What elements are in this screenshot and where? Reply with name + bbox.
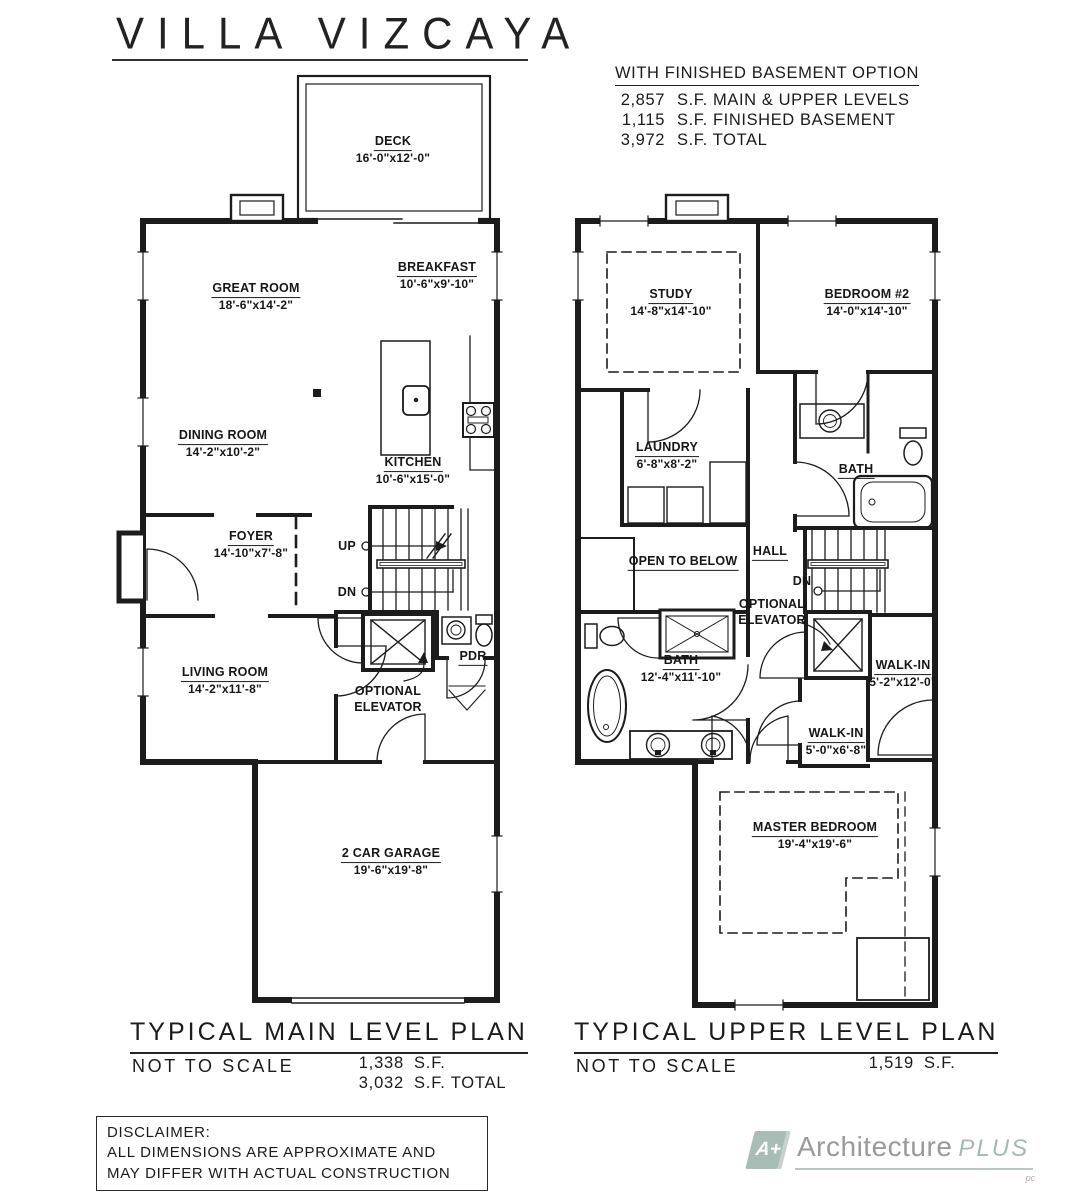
room-label-walkin-large: WALK-IN5'-2"x12'-0"	[869, 657, 937, 691]
elevator-main	[363, 614, 433, 681]
room-label-garage: 2 CAR GARAGE19'-6"x19'-8"	[341, 845, 441, 879]
floor-plan-sheet: VILLA VIZCAYA WITH FINISHED BASEMENT OPT…	[0, 0, 1080, 1200]
room-label-study: STUDY14'-8"x14'-10"	[630, 286, 711, 320]
disclaimer-box: DISCLAIMER: ALL DIMENSIONS ARE APPROXIMA…	[96, 1116, 488, 1191]
disclaimer-line: ALL DIMENSIONS ARE APPROXIMATE AND	[107, 1143, 477, 1163]
stair-label-dn-upper: DN	[793, 573, 811, 589]
architecture-plus-mark-icon: A+	[745, 1131, 790, 1169]
basement-option-block: WITH FINISHED BASEMENT OPTION 2,857S.F. …	[615, 64, 919, 150]
architecture-plus-logo: A+ ArchitecturePLUS pc	[750, 1131, 1033, 1170]
basement-option-row: 3,972S.F. TOTAL	[615, 130, 919, 150]
room-label-open-to-below: OPEN TO BELOW	[628, 553, 739, 571]
garage-door	[292, 994, 464, 1006]
room-label-dining-room: DINING ROOM14'-2"x10'-2"	[178, 427, 268, 461]
room-label-deck: DECK16'-0"x12'-0"	[356, 133, 430, 167]
room-label-walkin-small: WALK-IN5'-0"x6'-8"	[806, 725, 867, 759]
room-label-master-bath: BATH12'-4"x11'-10"	[641, 652, 722, 686]
sheet-title: VILLA VIZCAYA	[116, 9, 582, 59]
main-plan-areas: 1,338S.F. 3,032S.F. TOTAL	[352, 1053, 506, 1093]
room-label-pdr: PDR	[459, 648, 488, 666]
deck-door	[318, 215, 478, 226]
disclaimer-line: MAY DIFFER WITH ACTUAL CONSTRUCTION	[107, 1164, 477, 1184]
room-label-foyer: FOYER14'-10"x7'-8"	[214, 528, 288, 562]
upper-plan-scale-note: NOT TO SCALE	[576, 1056, 738, 1077]
basement-option-row: 2,857S.F. MAIN & UPPER LEVELS	[615, 90, 919, 110]
column-marker	[313, 389, 321, 397]
architecture-plus-wordmark: ArchitecturePLUS pc	[795, 1131, 1033, 1170]
main-plan-title: TYPICAL MAIN LEVEL PLAN	[130, 1018, 528, 1054]
room-label-breakfast: BREAKFAST10'-6"x9'-10"	[397, 259, 477, 293]
main-level-plan	[119, 76, 502, 1006]
logo-pc-suffix: pc	[1026, 1173, 1036, 1183]
elevator-upper	[798, 612, 870, 678]
room-label-great-room: GREAT ROOM18'-6"x14'-2"	[211, 280, 300, 314]
area-row: 1,519S.F.	[862, 1053, 956, 1073]
chimney-main	[231, 195, 283, 221]
stair-label-up: UP	[338, 538, 356, 554]
room-label-living-room: LIVING ROOM14'-2"x11'-8"	[181, 664, 269, 698]
title-underline	[112, 59, 528, 61]
room-label-kitchen: KITCHEN10'-6"x15'-0"	[376, 454, 450, 488]
disclaimer-title: DISCLAIMER:	[107, 1123, 477, 1143]
upper-plan-areas: 1,519S.F.	[862, 1053, 956, 1073]
room-label-bath-upper: BATH	[838, 461, 875, 479]
area-row: 1,338S.F.	[352, 1053, 506, 1073]
optional-elevator-label-main: OPTIONALELEVATOR	[354, 683, 422, 716]
upper-plan-title: TYPICAL UPPER LEVEL PLAN	[574, 1018, 998, 1054]
optional-elevator-label-upper: OPTIONALELEVATOR	[738, 596, 806, 629]
chimney-upper	[666, 195, 728, 221]
main-plan-scale-note: NOT TO SCALE	[132, 1056, 294, 1077]
room-label-bedroom2: BEDROOM #214'-0"x14'-10"	[824, 286, 911, 320]
basement-option-heading: WITH FINISHED BASEMENT OPTION	[615, 64, 919, 86]
area-row: 3,032S.F. TOTAL	[352, 1073, 506, 1093]
room-label-master-bedroom: MASTER BEDROOM19'-4"x19'-6"	[752, 819, 878, 853]
basement-option-row: 1,115S.F. FINISHED BASEMENT	[615, 110, 919, 130]
room-label-laundry: LAUNDRY6'-8"x8'-2"	[635, 439, 699, 473]
stair-label-dn: DN	[338, 584, 356, 600]
room-label-hall: HALL	[752, 543, 788, 561]
